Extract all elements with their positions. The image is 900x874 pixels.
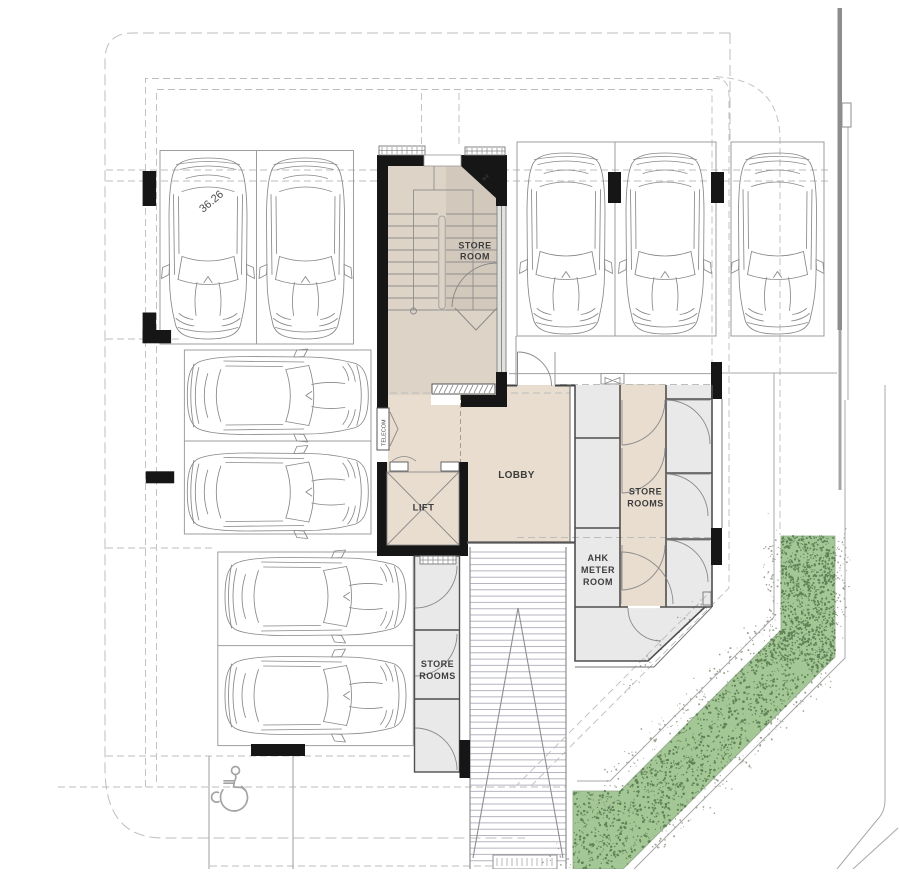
- svg-text:TELECOM: TELECOM: [382, 419, 388, 446]
- svg-text:ROOMS: ROOMS: [627, 499, 664, 509]
- svg-text:ROOM: ROOM: [460, 252, 490, 262]
- svg-text:ROOMS: ROOMS: [419, 671, 456, 681]
- svg-text:LIFT: LIFT: [413, 503, 435, 514]
- svg-text:METER: METER: [581, 565, 615, 575]
- svg-text:AHK: AHK: [588, 553, 609, 563]
- svg-text:STORE: STORE: [629, 487, 662, 497]
- svg-text:LOBBY: LOBBY: [498, 470, 535, 481]
- svg-text:STORE: STORE: [421, 659, 454, 669]
- svg-text:ROOM: ROOM: [583, 577, 613, 587]
- svg-text:STORE: STORE: [458, 241, 491, 251]
